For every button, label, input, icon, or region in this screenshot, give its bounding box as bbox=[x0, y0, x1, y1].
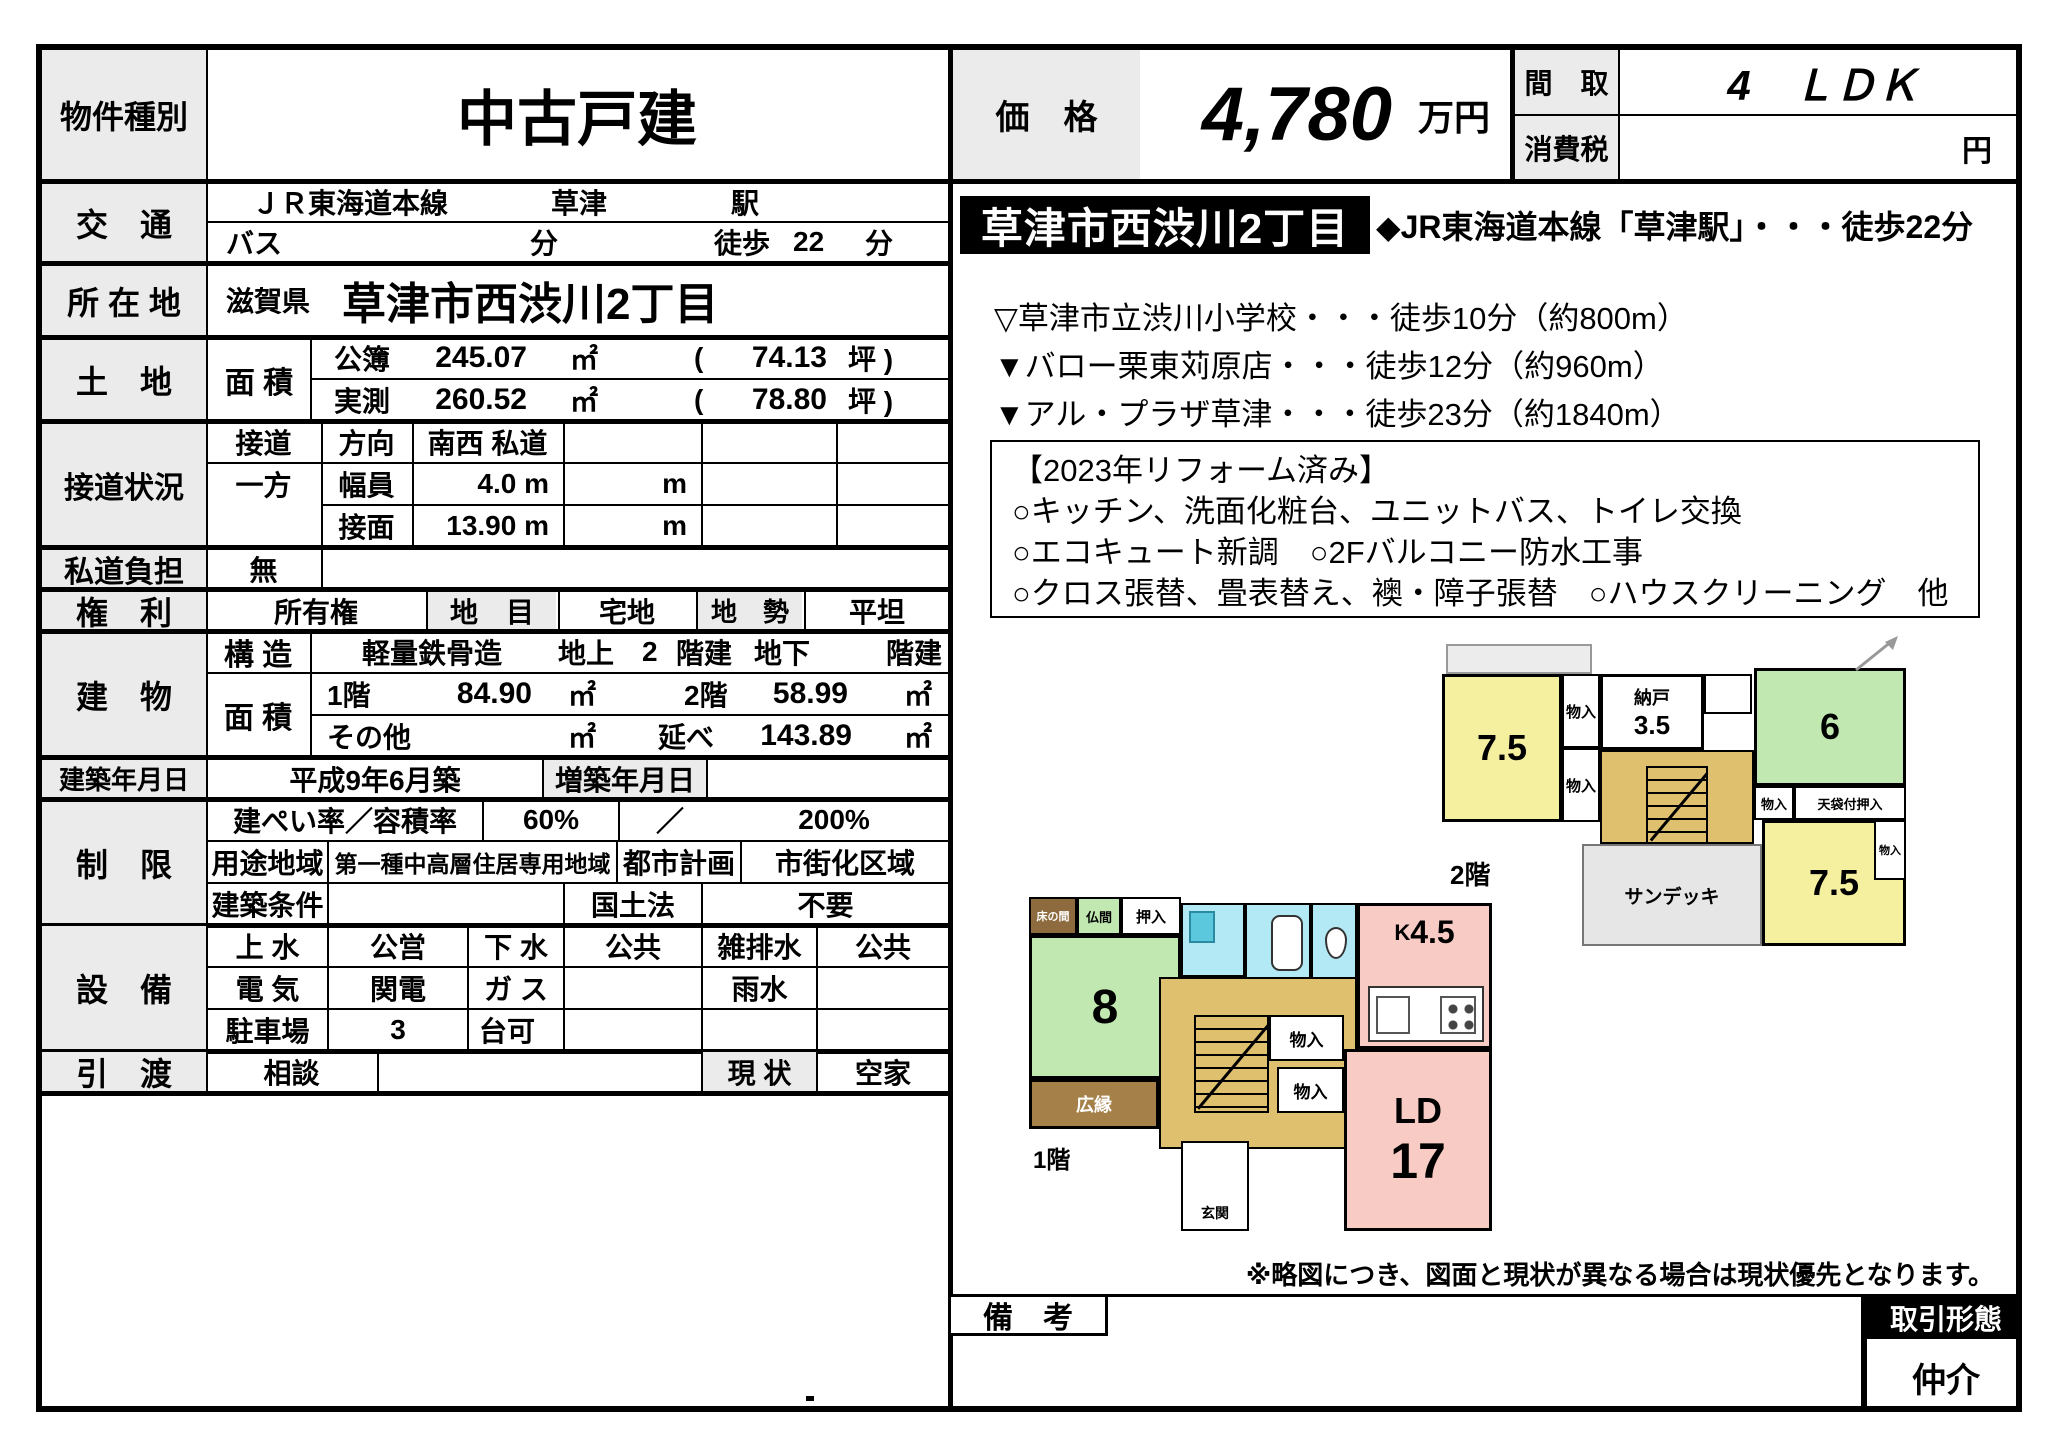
transport-station: 草津 bbox=[551, 182, 607, 221]
grid-line bbox=[42, 1091, 948, 1096]
road-r2c1: 一方 bbox=[208, 464, 319, 504]
above-ground-label: 地上 bbox=[558, 632, 614, 672]
building-sqm-1: ㎡ bbox=[568, 674, 596, 714]
plan-disclaimer: ※略図につき、図面と現状が異なる場合は現状優先となります。 bbox=[1242, 1256, 1994, 1290]
staircase-2f bbox=[1646, 766, 1708, 844]
floor2-area: 58.99 bbox=[748, 674, 848, 714]
building-sqm-4: ㎡ bbox=[904, 716, 932, 755]
above-unit: 階建 bbox=[676, 632, 732, 672]
sun-deck: サンデッキ bbox=[1582, 844, 1762, 946]
bathroom bbox=[1245, 903, 1311, 981]
parking-count: 3 bbox=[329, 1010, 467, 1049]
handover-label: 引 渡 bbox=[42, 1052, 206, 1091]
total-area-label: 延べ bbox=[658, 716, 714, 755]
above-floors: 2 bbox=[642, 632, 658, 672]
toilet-room bbox=[1311, 903, 1357, 981]
ratio-slash: ／ bbox=[620, 800, 720, 840]
floor-1f-label: 1階 bbox=[1033, 1143, 1070, 1171]
kitchen-label: K bbox=[1394, 920, 1410, 946]
price-value: 4,780 bbox=[1202, 71, 1392, 158]
city-plan-label: 都市計画 bbox=[618, 842, 740, 882]
floor2-label: 2階 bbox=[684, 674, 728, 714]
land-label: 土 地 bbox=[42, 340, 206, 419]
land-category-label: 地 目 bbox=[428, 592, 556, 629]
genkan-entrance: 玄関 bbox=[1181, 1141, 1249, 1231]
layout-value: 4 ＬＤＫ bbox=[1618, 50, 2022, 114]
other-area-label: その他 bbox=[327, 716, 411, 755]
handover-value: 相談 bbox=[208, 1052, 375, 1091]
closet: 物入 bbox=[1269, 1015, 1344, 1061]
area-badge: 草津市西渋川2丁目 bbox=[960, 196, 1370, 254]
tax-unit: 円 bbox=[1618, 116, 2022, 179]
price-label: 価 格 bbox=[953, 50, 1140, 179]
closet: 物入 bbox=[1562, 748, 1600, 822]
grid-line bbox=[321, 548, 323, 590]
city-plan-value: 市街化区域 bbox=[742, 842, 948, 882]
land-measured-label: 実測 bbox=[334, 380, 390, 419]
tax-label: 消費税 bbox=[1515, 116, 1618, 179]
grid-line bbox=[377, 1052, 379, 1094]
land-paren-2: ( bbox=[694, 380, 703, 419]
address-value: 草津市西渋川2丁目 bbox=[342, 264, 718, 335]
drain-value: 公共 bbox=[818, 926, 948, 966]
living-dining-size: 17 bbox=[1390, 1132, 1446, 1190]
land-law-label: 国土法 bbox=[565, 884, 701, 923]
kitchen-sink-icon bbox=[1376, 996, 1410, 1034]
private-road-label: 私道負担 bbox=[42, 550, 206, 587]
transport-station-suffix: 駅 bbox=[731, 182, 759, 221]
closet: 物入 bbox=[1562, 674, 1600, 748]
hiroen-veranda: 広縁 bbox=[1029, 1079, 1159, 1129]
bathtub-icon bbox=[1271, 915, 1303, 971]
total-area-value: 143.89 bbox=[742, 716, 852, 755]
grid-line bbox=[310, 632, 312, 758]
grid-line bbox=[836, 422, 838, 548]
floorplan-1f: 床の間 仏間 押入 8 広縁 K 4.5 物入 物入 LD 17 玄関 1階 bbox=[1029, 897, 1492, 1235]
land-tsubo-close-1: 坪 ) bbox=[848, 338, 893, 378]
transaction-type-value: 仲介 bbox=[1867, 1339, 2022, 1412]
land-measured-value: 260.52 bbox=[412, 380, 527, 419]
land-law-value: 不要 bbox=[703, 884, 948, 923]
road-r1c3: 南西 私道 bbox=[414, 422, 561, 462]
below-unit: 階建 bbox=[870, 632, 942, 672]
stair-diagonal bbox=[1197, 1022, 1269, 1110]
washroom bbox=[1181, 903, 1245, 977]
land-registered-tsubo: 74.13 bbox=[742, 338, 827, 378]
floor1-label: 1階 bbox=[327, 674, 371, 714]
property-type-label: 物件種別 bbox=[42, 50, 206, 179]
grid-line bbox=[701, 422, 703, 548]
built-date-label: 建築年月日 bbox=[42, 760, 206, 797]
living-dining: LD 17 bbox=[1344, 1049, 1492, 1231]
zoning-value: 第一種中高層住居専用地域 bbox=[329, 842, 616, 882]
parking-label: 駐車場 bbox=[208, 1010, 327, 1049]
remarks-label: 備 考 bbox=[948, 1294, 1108, 1336]
poi-supermarket-2: ▼アル・プラザ草津・・・徒歩23分（約1840m） bbox=[994, 389, 1681, 434]
staircase-1f bbox=[1194, 1015, 1269, 1113]
floor-ratio-value: 200% bbox=[720, 800, 948, 840]
electric-value: 関電 bbox=[329, 968, 467, 1008]
document-frame: 物件種別 中古戸建 価 格 4,780 万円 間 取 4 ＬＤＫ 消費税 円 交… bbox=[36, 44, 2022, 1412]
utilities-label: 設 備 bbox=[42, 926, 206, 1049]
land-paren-1: ( bbox=[694, 338, 703, 378]
rights-label: 権 利 bbox=[42, 592, 206, 629]
restrictions-label: 制 限 bbox=[42, 802, 206, 923]
layout-label: 間 取 bbox=[1515, 50, 1618, 114]
transport-line: ＪＲ東海道本線 bbox=[252, 182, 448, 221]
transaction-type-label: 取引形態 bbox=[1867, 1297, 2022, 1339]
conditions-label: 建築条件 bbox=[208, 884, 327, 923]
room-2f-northeast: 6 bbox=[1754, 668, 1906, 786]
kitchen-size: 4.5 bbox=[1410, 914, 1454, 951]
transport-bus-unit: 分 bbox=[530, 223, 558, 261]
grid-line bbox=[706, 758, 708, 800]
below-ground-label: 地下 bbox=[754, 632, 810, 672]
tokonoma-alcove: 床の間 bbox=[1029, 897, 1077, 935]
panel-divider bbox=[948, 50, 953, 1412]
building-sqm-3: ㎡ bbox=[568, 716, 596, 755]
balcony bbox=[1446, 644, 1592, 674]
stair-diagonal bbox=[1650, 772, 1708, 842]
living-dining-label: LD bbox=[1394, 1090, 1442, 1132]
kitchen: K 4.5 bbox=[1357, 903, 1492, 1049]
storage-room-name: 納戸 bbox=[1634, 684, 1670, 710]
transport-label: 交 通 bbox=[42, 184, 206, 261]
building-label: 建 物 bbox=[42, 634, 206, 755]
current-status-value: 空家 bbox=[818, 1052, 948, 1091]
structure-label: 構 造 bbox=[208, 632, 308, 672]
extension-date-label: 増築年月日 bbox=[544, 760, 706, 797]
storage-room-size: 3.5 bbox=[1634, 710, 1670, 741]
gas-label: ガ ス bbox=[469, 968, 563, 1008]
remarks-box: 備 考 bbox=[948, 1294, 1864, 1412]
land-measured-tsubo: 78.80 bbox=[742, 380, 827, 419]
station-headline: ◆JR東海道本線「草津駅」・・・徒歩22分 bbox=[1376, 196, 1973, 254]
renovation-box: 【2023年リフォーム済み】 ○キッチン、洗面化粧台、ユニットバス、トイレ交換 … bbox=[990, 440, 1980, 618]
land-area-label: 面 積 bbox=[208, 340, 310, 419]
oshiire-closet: 押入 bbox=[1121, 897, 1181, 935]
poi-supermarket-1: ▼バロー栗東苅原店・・・徒歩12分（約960m） bbox=[994, 341, 1664, 386]
rain-label: 雨水 bbox=[703, 968, 816, 1008]
private-road-value: 無 bbox=[208, 548, 319, 589]
floor1-area: 84.90 bbox=[432, 674, 532, 714]
property-flyer: 物件種別 中古戸建 価 格 4,780 万円 間 取 4 ＬＤＫ 消費税 円 交… bbox=[0, 0, 2056, 1454]
renovation-item: ○キッチン、洗面化粧台、ユニットバス、トイレ交換 bbox=[1012, 491, 1958, 532]
road-r1c2: 方向 bbox=[323, 422, 410, 462]
renovation-item: ○クロス張替、畳表替え、襖・障子張替 ○ハウスクリーニング 他 bbox=[1012, 573, 1958, 614]
butsuma-alcove: 仏間 bbox=[1077, 897, 1121, 935]
poi-school: ▽草津市立渋川小学校・・・徒歩10分（約800m） bbox=[994, 293, 1688, 338]
sewer-value: 公共 bbox=[565, 926, 701, 966]
land-sqm-1: ㎡ bbox=[570, 338, 598, 378]
drain-label: 雑排水 bbox=[703, 926, 816, 966]
price-value-cell: 4,780 万円 bbox=[1140, 50, 1510, 179]
closet: 物入 bbox=[1277, 1067, 1344, 1113]
renovation-title: 【2023年リフォーム済み】 bbox=[1012, 450, 1958, 491]
road-label: 接道状況 bbox=[42, 424, 206, 545]
closet: 物入 bbox=[1754, 786, 1794, 820]
price-unit: 万円 bbox=[1418, 89, 1490, 141]
transport-bus-label: バス bbox=[226, 223, 282, 261]
terrain-label: 地 勢 bbox=[698, 592, 802, 629]
road-frontage-unit2: m bbox=[565, 506, 695, 546]
property-type-value: 中古戸建 bbox=[206, 50, 948, 179]
transport-walk-label: 徒歩 bbox=[714, 223, 770, 261]
stray-mark bbox=[806, 1396, 814, 1401]
storage-room: 納戸 3.5 bbox=[1600, 674, 1704, 750]
toilet-icon bbox=[1325, 927, 1347, 959]
sewer-label: 下 水 bbox=[469, 926, 563, 966]
land-sqm-2: ㎡ bbox=[570, 380, 598, 419]
transport-walk-min: 22 bbox=[793, 223, 824, 261]
transport-walk-unit: 分 bbox=[865, 223, 893, 261]
road-r2c2: 幅員 bbox=[323, 464, 410, 504]
current-status-label: 現 状 bbox=[703, 1052, 816, 1091]
floorplan-2f: 7.5 物入 物入 納戸 3.5 6 物入 天袋付押入 7.5 物入 サンデッキ… bbox=[1442, 644, 1906, 966]
closet: 物入 bbox=[1874, 820, 1906, 880]
clos-tenbukuro: 天袋付押入 bbox=[1794, 786, 1906, 820]
road-frontage-value: 13.90 m bbox=[414, 506, 557, 546]
stove-icon bbox=[1440, 996, 1476, 1034]
address-label: 所 在 地 bbox=[42, 266, 206, 335]
building-sqm-2: ㎡ bbox=[904, 674, 932, 714]
road-r3c2: 接面 bbox=[323, 506, 410, 546]
water-label: 上 水 bbox=[208, 926, 327, 966]
building-area-label: 面 積 bbox=[208, 674, 308, 755]
sink-icon bbox=[1189, 911, 1215, 943]
land-registered-label: 公簿 bbox=[334, 338, 390, 378]
zoning-label: 用途地域 bbox=[208, 842, 327, 882]
road-width-value: 4.0 m bbox=[414, 464, 557, 504]
electric-label: 電 気 bbox=[208, 968, 327, 1008]
road-width-unit2: m bbox=[565, 464, 695, 504]
terrain-value: 平坦 bbox=[806, 590, 948, 631]
water-value: 公営 bbox=[329, 926, 467, 966]
coverage-label: 建ぺい率／容積率 bbox=[208, 800, 482, 840]
transaction-box: 取引形態 仲介 bbox=[1864, 1294, 2022, 1412]
address-prefecture: 滋賀県 bbox=[226, 264, 310, 335]
land-category-value: 宅地 bbox=[560, 590, 694, 631]
floor-2f-label: 2階 bbox=[1450, 858, 1490, 888]
room-2f-west: 7.5 bbox=[1442, 674, 1562, 822]
rights-value: 所有権 bbox=[208, 590, 424, 631]
closet bbox=[1704, 674, 1752, 714]
parking-unit: 台可 bbox=[469, 1010, 563, 1049]
grid-line bbox=[327, 884, 329, 926]
land-tsubo-close-2: 坪 ) bbox=[848, 380, 893, 419]
road-r1c1: 接道 bbox=[208, 422, 319, 462]
coverage-value: 60% bbox=[484, 800, 618, 840]
land-registered-value: 245.07 bbox=[412, 338, 527, 378]
grid-line bbox=[310, 338, 312, 422]
structure-value: 軽量鉄骨造 bbox=[362, 632, 502, 672]
built-date-value: 平成9年6月築 bbox=[208, 758, 542, 799]
renovation-item: ○エコキュート新調 ○2Fバルコニー防水工事 bbox=[1012, 532, 1958, 573]
north-arrow-icon bbox=[1850, 632, 1904, 676]
